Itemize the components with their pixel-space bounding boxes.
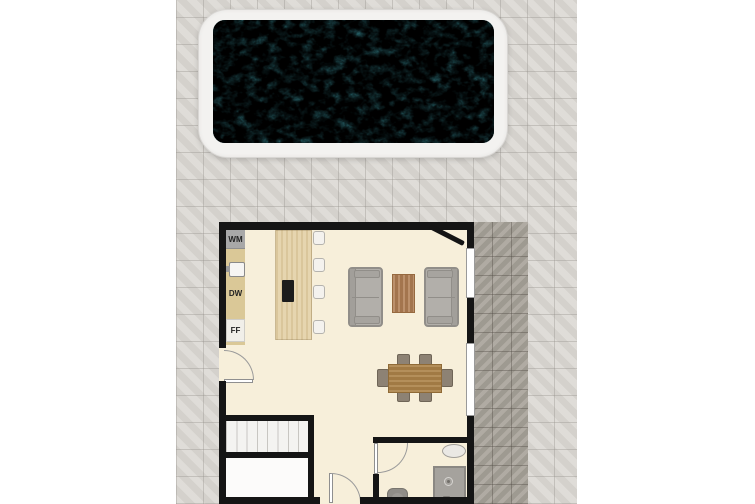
wall: [219, 415, 314, 421]
dishwasher[interactable]: DW: [226, 286, 245, 300]
bar-stool[interactable]: [313, 320, 325, 334]
wall: [373, 474, 379, 504]
bathroom-basin[interactable]: [442, 444, 466, 458]
floor-plan-canvas: WM DW FF: [0, 0, 755, 504]
washing-machine-label: WM: [228, 235, 242, 244]
sofa-armrest: [354, 316, 380, 324]
sofa-cushion-divider: [352, 297, 379, 298]
sofa-armrest: [354, 270, 380, 278]
wall: [219, 222, 226, 348]
wall: [219, 452, 314, 458]
shower-head-icon: [444, 477, 453, 486]
wall: [219, 497, 320, 504]
bar-stool[interactable]: [313, 258, 325, 272]
dining-table[interactable]: [388, 364, 442, 393]
sofa-armrest: [427, 270, 453, 278]
sofa[interactable]: [424, 267, 459, 327]
wall: [467, 222, 474, 248]
sofa[interactable]: [348, 267, 383, 327]
sink-tap: [226, 266, 230, 272]
bar-stool[interactable]: [313, 285, 325, 299]
cobblestone-path-texture: [473, 222, 528, 504]
dishwasher-label: DW: [229, 289, 242, 298]
bar-stool[interactable]: [313, 231, 325, 245]
fridge-freezer[interactable]: FF: [226, 319, 245, 342]
wall: [467, 416, 474, 504]
wall: [373, 437, 474, 443]
window[interactable]: [466, 343, 475, 416]
wall: [467, 298, 474, 343]
sofa-cushion-divider: [428, 297, 455, 298]
swimming-pool[interactable]: [213, 20, 494, 143]
store-room-floor: [226, 458, 308, 497]
wall: [219, 381, 226, 504]
sofa-armrest: [427, 316, 453, 324]
kitchen-sink[interactable]: [229, 262, 245, 277]
fridge-freezer-label: FF: [231, 326, 241, 335]
wall: [308, 415, 314, 504]
window[interactable]: [466, 248, 475, 298]
washing-machine[interactable]: WM: [226, 230, 245, 249]
staircase[interactable]: [226, 421, 308, 452]
coffee-table[interactable]: [392, 274, 415, 313]
dining-chair[interactable]: [441, 369, 453, 387]
cooktop[interactable]: [282, 280, 294, 302]
